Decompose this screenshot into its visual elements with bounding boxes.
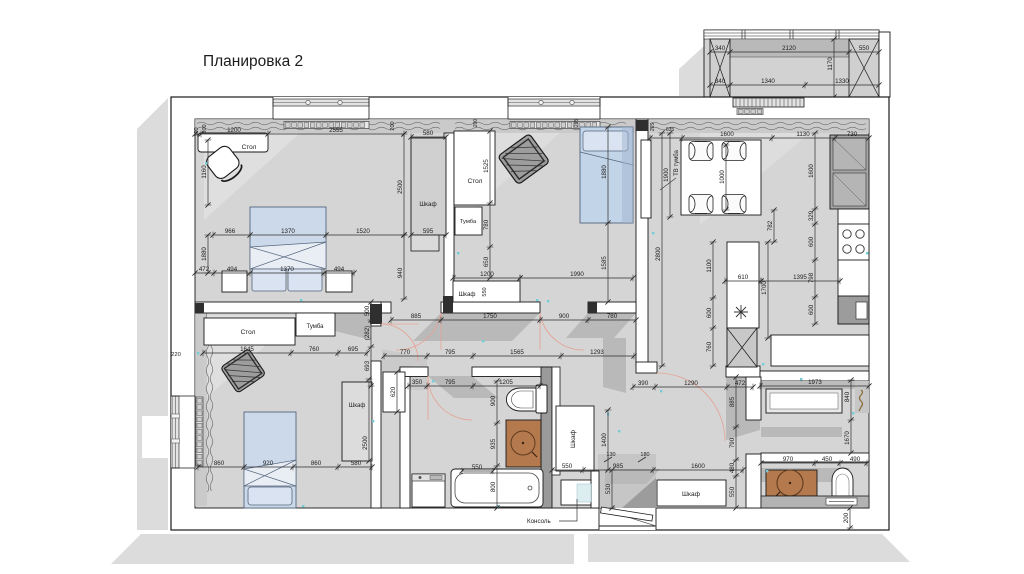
svg-text:860: 860	[214, 460, 225, 467]
svg-text:Стол: Стол	[468, 178, 483, 185]
svg-text:550: 550	[562, 463, 573, 470]
svg-text:1205: 1205	[499, 379, 513, 386]
svg-text:840: 840	[844, 391, 851, 402]
svg-text:1585: 1585	[601, 256, 608, 270]
svg-text:795: 795	[445, 379, 456, 386]
svg-text:600: 600	[706, 307, 713, 318]
svg-text:Консоль: Консоль	[527, 518, 551, 525]
svg-text:1370: 1370	[280, 266, 294, 273]
svg-text:180: 180	[640, 452, 649, 458]
svg-text:350: 350	[412, 379, 423, 386]
svg-text:610: 610	[738, 274, 749, 281]
svg-text:1600: 1600	[808, 164, 815, 178]
svg-text:530: 530	[605, 483, 612, 494]
svg-text:1400: 1400	[601, 433, 608, 447]
svg-text:Шкаф: Шкаф	[570, 429, 577, 448]
svg-text:693: 693	[364, 360, 371, 371]
svg-text:Стол: Стол	[241, 329, 256, 336]
svg-text:ТВ тумба: ТВ тумба	[674, 149, 680, 175]
svg-text:Стол: Стол	[242, 144, 257, 151]
svg-text:265: 265	[574, 119, 580, 128]
svg-text:620: 620	[390, 386, 397, 397]
svg-text:550: 550	[729, 486, 736, 497]
svg-text:920: 920	[263, 460, 274, 467]
svg-text:1290: 1290	[684, 380, 698, 387]
svg-text:265: 265	[650, 123, 656, 132]
svg-text:494: 494	[227, 266, 238, 273]
svg-text:2800: 2800	[655, 247, 662, 261]
svg-text:329: 329	[808, 210, 815, 221]
svg-text:795: 795	[445, 349, 456, 356]
svg-text:1750: 1750	[483, 313, 497, 320]
svg-text:595: 595	[423, 228, 434, 235]
svg-text:1160: 1160	[201, 165, 208, 179]
svg-text:Планировка 2: Планировка 2	[203, 53, 303, 70]
svg-text:1293: 1293	[590, 349, 604, 356]
svg-text:1565: 1565	[510, 349, 524, 356]
svg-text:1130: 1130	[796, 131, 810, 138]
svg-text:1000: 1000	[719, 170, 726, 184]
svg-text:1100: 1100	[706, 259, 713, 273]
svg-text:600: 600	[202, 124, 208, 133]
svg-text:340: 340	[715, 78, 726, 85]
svg-text:1600: 1600	[691, 463, 705, 470]
svg-text:2500: 2500	[362, 436, 369, 450]
svg-text:780: 780	[607, 313, 618, 320]
svg-text:730: 730	[847, 131, 858, 138]
svg-text:2120: 2120	[782, 45, 796, 52]
svg-text:1520: 1520	[356, 228, 370, 235]
svg-text:782: 782	[767, 220, 774, 231]
svg-text:1973: 1973	[808, 379, 822, 386]
svg-text:Шкаф: Шкаф	[682, 491, 701, 498]
svg-text:1170: 1170	[827, 57, 834, 71]
svg-text:770: 770	[400, 349, 411, 356]
svg-text:1370: 1370	[281, 228, 295, 235]
svg-text:985: 985	[613, 463, 624, 470]
svg-text:900: 900	[490, 395, 497, 406]
svg-text:Тумба: Тумба	[307, 324, 325, 330]
svg-text:200: 200	[390, 121, 396, 130]
svg-text:600: 600	[808, 304, 815, 315]
svg-text:Шкаф: Шкаф	[458, 291, 475, 298]
svg-text:966: 966	[225, 228, 236, 235]
svg-text:100: 100	[194, 127, 200, 136]
svg-text:885: 885	[729, 396, 736, 407]
svg-text:935: 935	[490, 438, 497, 449]
svg-text:940: 940	[397, 267, 404, 278]
svg-text:970: 970	[783, 456, 794, 463]
svg-text:1700: 1700	[761, 281, 768, 295]
svg-text:2555: 2555	[329, 127, 343, 134]
svg-text:1990: 1990	[570, 271, 584, 278]
svg-text:860: 860	[311, 460, 322, 467]
svg-text:494: 494	[334, 266, 345, 273]
svg-text:200: 200	[843, 512, 850, 523]
svg-text:1525: 1525	[483, 159, 490, 173]
svg-text:1645: 1645	[240, 346, 254, 353]
svg-text:480: 480	[729, 462, 736, 473]
svg-text:490: 490	[850, 456, 861, 463]
svg-text:1600: 1600	[720, 131, 734, 138]
svg-text:550: 550	[859, 45, 870, 52]
svg-text:220: 220	[171, 352, 181, 358]
svg-text:500: 500	[364, 305, 371, 316]
svg-text:780: 780	[483, 219, 490, 230]
svg-text:760: 760	[706, 341, 713, 352]
svg-text:1395: 1395	[793, 274, 807, 281]
svg-text:580: 580	[423, 130, 434, 137]
svg-text:550: 550	[482, 287, 488, 296]
svg-text:200: 200	[473, 119, 479, 128]
svg-text:Тумба: Тумба	[460, 219, 477, 225]
svg-text:1880: 1880	[201, 247, 208, 261]
svg-text:798: 798	[808, 272, 815, 283]
svg-text:1200: 1200	[480, 271, 494, 278]
svg-text:390: 390	[638, 380, 649, 387]
svg-text:472: 472	[735, 380, 746, 387]
svg-text:790: 790	[729, 437, 736, 448]
svg-text:600: 600	[808, 236, 815, 247]
svg-text:635: 635	[666, 127, 675, 133]
svg-text:130: 130	[606, 452, 615, 458]
svg-text:1330: 1330	[835, 78, 849, 85]
svg-text:Шкаф: Шкаф	[419, 201, 436, 208]
svg-text:760: 760	[309, 346, 320, 353]
svg-text:650: 650	[483, 256, 490, 267]
svg-text:450: 450	[822, 456, 833, 463]
svg-text:900: 900	[559, 313, 570, 320]
svg-text:1340: 1340	[761, 78, 775, 85]
svg-text:550: 550	[472, 464, 483, 471]
svg-text:580: 580	[351, 460, 362, 467]
svg-text:(282): (282)	[364, 326, 371, 340]
svg-text:885: 885	[411, 313, 422, 320]
svg-text:800: 800	[490, 481, 497, 492]
svg-text:1880: 1880	[601, 165, 608, 179]
svg-text:340: 340	[715, 45, 726, 52]
svg-text:1200: 1200	[227, 127, 241, 134]
svg-text:1670: 1670	[844, 431, 851, 445]
svg-text:Шкаф: Шкаф	[349, 403, 366, 409]
svg-text:1900: 1900	[663, 168, 670, 182]
svg-text:695: 695	[348, 346, 359, 353]
svg-text:2500: 2500	[397, 180, 404, 194]
